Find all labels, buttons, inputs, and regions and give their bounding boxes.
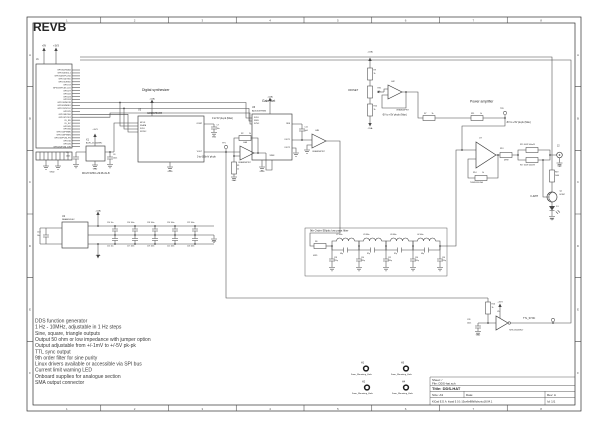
- schematic-label: H1: [361, 361, 365, 364]
- gpio-pin-label: GPIO05: [63, 126, 71, 128]
- schematic-label: I LIMIT: [530, 194, 538, 198]
- schematic-label: C7: [217, 125, 219, 127]
- schematic-label: C17 100n: [127, 245, 134, 247]
- schematic-label: 1k: [237, 168, 239, 170]
- schematic-label: R16: [492, 304, 495, 306]
- gpio-pin-label: GPIO06: [63, 129, 71, 131]
- gpio-pin-label: ID_SD: [65, 120, 72, 122]
- feature-line: SMA output connector: [35, 380, 85, 386]
- schematic-label: C36: [442, 257, 445, 259]
- grid-row-label: F: [29, 371, 31, 375]
- feature-line: Output adjustable from +/-1mV to +/-5V p…: [35, 343, 136, 349]
- schematic-label: BC847: [560, 194, 566, 196]
- schematic-label: L4 560n: [417, 234, 424, 236]
- schematic-label: R6: [315, 241, 317, 243]
- schematic-label: 82p: [367, 253, 370, 255]
- schematic-label: AD5453YRMZ: [252, 109, 267, 112]
- schematic-label: -5VA: [368, 127, 373, 130]
- schematic-label: 220p: [334, 260, 338, 262]
- label-gain-set: Gain Set: [262, 99, 275, 103]
- schematic-label: R19: [555, 172, 558, 174]
- title-block-title: Title: DDS-HAT: [432, 386, 461, 391]
- led-indicator: [80, 57, 560, 220]
- schematic-label: 82p: [394, 253, 397, 255]
- schematic-label: 100n: [66, 155, 70, 157]
- label-digital-synthesizer: Digital synthesizer: [142, 88, 170, 92]
- gpio-pin-label: GPIO16: [63, 141, 71, 143]
- title-block-file: File: DDS-hat.sch: [432, 381, 456, 385]
- schematic-canvas: Sheet: / File: DDS-hat.sch Title: DDS-HA…: [0, 0, 600, 428]
- schematic-label: U3: [138, 108, 142, 111]
- schematic-label: TTL_SYNC: [523, 317, 535, 320]
- grid-row-label: A: [577, 53, 579, 57]
- schematic-label: RV1: [378, 88, 382, 90]
- grid-row-label: D: [577, 244, 580, 248]
- power-amplifier: [468, 142, 518, 181]
- gpio-pin-label: GPIO07/CE1: [59, 117, 72, 119]
- schematic-label: NMA0505SC: [62, 218, 75, 221]
- schematic-label: C14 10u: [107, 222, 113, 224]
- schematic-label: +3V3: [497, 301, 503, 303]
- grid-col-label: 1: [66, 407, 68, 411]
- schematic-label: C13: [37, 232, 40, 234]
- schematic-label: TP6: [500, 108, 505, 110]
- grid-col-label: 2: [134, 407, 136, 411]
- gpio-pin-label: GPIO13/PWM1: [56, 135, 71, 137]
- schematic-label: C32: [388, 257, 391, 259]
- schematic-label: C6: [113, 154, 115, 156]
- title-block-date: Date:: [466, 393, 473, 397]
- feature-line: 9th order filter for sine purity: [35, 355, 98, 361]
- schematic-label: +3V3: [53, 44, 59, 47]
- gpio-pin-label: GPIO23: [63, 96, 71, 98]
- feature-line: 1 Hz - 10MHz, adjustable in 1 Hz steps: [35, 325, 122, 331]
- gpio-pin-label: GPIO14/TXD: [59, 79, 72, 81]
- schematic-label: R13: [500, 148, 503, 150]
- schematic-label: IOUT2: [284, 147, 290, 149]
- schematic-label: J2: [557, 144, 560, 147]
- schematic-label: D1: [556, 206, 559, 208]
- ttl-sync: [80, 60, 571, 335]
- gpio-pin-label: GPIO25: [63, 111, 71, 113]
- schematic-label: SDIN: [254, 120, 259, 122]
- schematic-label: OPA4820IPWT: [312, 150, 326, 153]
- schematic-label: 3mm_Mounting_Hole: [352, 392, 374, 395]
- schematic-label: OPA4820IPWT: [396, 109, 410, 112]
- schematic-label: 330p: [415, 260, 419, 262]
- schematic-label: H2: [362, 380, 366, 383]
- grid-col-label: 5: [337, 18, 339, 22]
- schematic-sheet: Sheet: / File: DDS-hat.sch Title: DDS-HA…: [0, 0, 600, 428]
- schematic-label: GND: [232, 180, 237, 182]
- grid-row-label: A: [29, 53, 31, 57]
- schematic-label: H3: [401, 361, 405, 364]
- schematic-label: OFFSET: [348, 88, 359, 92]
- sheet-frame: [27, 17, 581, 411]
- schematic-label: U6: [252, 106, 256, 109]
- gpio-pin-label: GPIO03/SCL1: [58, 73, 72, 75]
- schematic-label: R15 100R 500mW: [520, 144, 535, 146]
- feature-line: Onboard supplies for analogue section: [35, 374, 121, 380]
- schematic-label: U4B: [315, 130, 320, 132]
- gpio-pin-label: GPIO08/CE0: [59, 114, 72, 116]
- schematic-label: 1k: [374, 109, 376, 111]
- feature-line: Current limit warning LED: [35, 368, 92, 374]
- schematic-label: C28: [334, 257, 337, 259]
- schematic-label: +5VA: [95, 209, 101, 212]
- schematic-label: 2k: [249, 133, 251, 135]
- feature-list: DDS function generator1 Hz - 10MHz, adju…: [35, 319, 151, 387]
- title-block-id: Id: 1/1: [547, 399, 556, 403]
- schematic-label: 10n: [217, 128, 220, 130]
- grid-col-label: 2: [134, 18, 136, 22]
- schematic-label: Q1: [560, 191, 564, 193]
- schematic-label: +5VA: [267, 95, 273, 98]
- schematic-label: SCLK: [140, 128, 146, 130]
- sum-network: [423, 111, 507, 150]
- gpio-pin-label: GPIO02/SDA1: [57, 69, 71, 72]
- schematic-label: 49R9: [313, 255, 317, 257]
- grid-col-label: 8: [540, 18, 542, 22]
- grid-col-label: 8: [540, 407, 542, 411]
- gpio-pin-label: GPIO10/MOSI: [57, 102, 71, 104]
- schematic-label: IOUT1: [284, 139, 290, 141]
- schematic-label: THS3091DDA: [470, 181, 483, 184]
- schematic-label: 0 to 5V pk-pk (Max): [212, 117, 233, 120]
- gpio-pin-label: GPIO27: [63, 90, 71, 92]
- label-filter: 9th Order Elliptic low pass filter: [310, 228, 348, 232]
- schematic-label: GND: [93, 169, 98, 171]
- schematic-label: 1k: [480, 113, 482, 115]
- schematic-label: L1 560n: [336, 234, 343, 236]
- schematic-label: 6p8: [305, 130, 308, 132]
- schematic-label: 330p: [361, 260, 365, 262]
- schematic-label: SYNC: [254, 123, 260, 125]
- schematic-label: 0 to 600mV pk-pk: [197, 155, 217, 158]
- schematic-label: 1k: [492, 307, 494, 309]
- schematic-label: C15 10u: [107, 245, 113, 247]
- gpio-pin-label: GPIO26: [63, 143, 71, 145]
- schematic-label: C19 100n: [147, 245, 154, 247]
- schematic-label: GND: [260, 171, 265, 173]
- schematic-label: H4: [402, 380, 406, 383]
- gpio-pin-label: GPIO24: [63, 99, 71, 101]
- gain-set-mdac: [252, 98, 312, 171]
- gpio-pin-label: GPIO09/MISO: [57, 105, 71, 107]
- grid-row-label: B: [577, 117, 579, 121]
- schematic-label: R17 100R 500mW: [520, 164, 535, 166]
- gpio-pin-labels: GPIO02/SDA1GPIO03/SCL1GPIO04/GPCLK0GPIO1…: [53, 69, 72, 149]
- gpio-pin-label: GPIO12/PWM0: [56, 132, 71, 134]
- schematic-label: +5VA: [367, 50, 373, 53]
- schematic-label: 3mm_Mounting_Hole: [391, 373, 413, 376]
- schematic-label: 1k: [482, 172, 484, 174]
- schematic-label: OPA4820IPWT: [238, 161, 252, 164]
- rev-label: REVB: [33, 20, 67, 34]
- grid-reference-labels: 1122334455667788AABBCCDDEEFF: [29, 18, 580, 411]
- gpio-pin-label: GPIO20/PCM_DIN: [53, 146, 71, 148]
- grid-row-label: E: [577, 308, 579, 312]
- schematic-label: RFB: [286, 123, 291, 125]
- schematic-label: R2: [241, 133, 243, 135]
- schematic-label: C21 100n: [167, 245, 174, 247]
- schematic-label: GND: [168, 171, 173, 173]
- schematic-label: 1k: [374, 73, 376, 75]
- schematic-label: +5V: [42, 44, 47, 47]
- schematic-label: FSYNC: [140, 131, 147, 133]
- schematic-label: U2: [62, 215, 66, 218]
- grid-col-label: 1: [66, 18, 68, 22]
- schematic-label: -5VA: [96, 254, 101, 257]
- grid-col-label: 4: [269, 18, 271, 22]
- schematic-label: SCLK: [254, 117, 260, 119]
- schematic-label: COMP: [196, 123, 202, 125]
- schematic-label: C23 100n: [187, 245, 194, 247]
- schematic-label: R7: [424, 113, 426, 115]
- grid-row-label: C: [29, 180, 32, 184]
- title-block: Sheet: / File: DDS-hat.sch Title: DDS-HA…: [430, 377, 575, 405]
- schematic-label: ACHL-25.000MHz: [86, 141, 102, 144]
- schematic-label: U7: [479, 137, 483, 139]
- schematic-label: 68p: [340, 253, 343, 255]
- schematic-label: 100n: [113, 157, 117, 159]
- schematic-label: R10: [374, 106, 377, 108]
- label-power-amplifier: Power amplifier: [470, 99, 494, 103]
- schematic-label: AD9837BCPZ: [147, 112, 163, 115]
- schematic-label: R11: [471, 113, 474, 115]
- schematic-label: C26: [467, 319, 470, 321]
- schematic-label: GND: [476, 335, 481, 337]
- schematic-label: C11: [305, 127, 308, 129]
- gpio-pin-label: GPIO15/RXD: [58, 82, 71, 84]
- schematic-label: X1: [86, 138, 90, 141]
- schematic-label: VREF: [269, 155, 275, 157]
- schematic-label: U4A: [243, 141, 248, 144]
- schematic-label: C16 100n: [127, 222, 134, 224]
- title-block-size: Size: A3: [432, 393, 443, 397]
- schematic-label: C34: [415, 257, 418, 259]
- schematic-label: 220p: [442, 260, 446, 262]
- schematic-label: 3mm_Mounting_Hole: [351, 373, 373, 376]
- schematic-label: -5V to +5V pk-pk (Max): [506, 121, 531, 124]
- schematic-label: 10k: [378, 91, 381, 93]
- grid-row-label: D: [29, 244, 32, 248]
- schematic-label: GND: [212, 137, 217, 139]
- feature-line: Output 50 ohm or low impedance with jump…: [35, 337, 151, 343]
- schematic-label: -5V to +5V pk-pk (Max): [382, 113, 407, 116]
- feature-line: TTL sync output: [35, 349, 71, 355]
- gpio-pin-label: GPIO04/GPCLK0: [55, 76, 72, 78]
- schematic-label: MCLH-WHC1-29.08-JG-B: [82, 172, 110, 175]
- grid-col-label: 3: [202, 18, 204, 22]
- schematic-label: GND: [50, 171, 55, 173]
- opamp-u4a: [231, 136, 272, 181]
- mounting-holes: [364, 366, 409, 390]
- schematic-label: L2 680n: [363, 234, 370, 236]
- schematic-label: 10u: [37, 235, 40, 237]
- schematic-label: J1: [36, 57, 39, 61]
- schematic-label: R14: [473, 172, 476, 174]
- schematic-label: U4C: [391, 81, 396, 83]
- schematic-label: +3V3: [92, 129, 98, 131]
- feature-line: Sine, square, triangle outputs: [35, 331, 101, 337]
- schematic-label: C18 100n: [147, 222, 154, 224]
- schematic-label: GND: [557, 166, 562, 168]
- gpio-pin-label: GPIO22: [63, 93, 71, 95]
- grid-col-label: 6: [405, 18, 407, 22]
- gpio-pin-label: GPIO17: [63, 84, 71, 86]
- schematic-label: R9: [374, 70, 376, 72]
- schematic-label: 1k00: [555, 175, 559, 177]
- schematic-label: R1: [237, 165, 239, 167]
- gpio-pin-label: ID_SC: [65, 123, 72, 125]
- grid-col-label: 3: [202, 407, 204, 411]
- dds-synthesizer: [138, 100, 240, 171]
- schematic-label: 100n: [467, 322, 471, 324]
- feature-line: Linux drivers available or accessible vi…: [35, 362, 142, 368]
- schematic-label: MCLK: [140, 122, 146, 124]
- schematic-label: L3 680n: [390, 234, 397, 236]
- grid-row-label: C: [577, 180, 580, 184]
- schematic-label: C20 100n: [167, 222, 174, 224]
- schematic-label: C30: [361, 257, 364, 259]
- grid-col-label: 7: [473, 18, 475, 22]
- schematic-label: TP1: [222, 143, 227, 145]
- grid-row-label: E: [29, 308, 31, 312]
- schematic-label: 74HC1G04GW-T: [509, 330, 524, 332]
- schematic-label: GND: [212, 241, 217, 243]
- grid-col-label: 4: [269, 407, 271, 411]
- grid-col-label: 7: [473, 407, 475, 411]
- grid-col-label: 6: [405, 407, 407, 411]
- grid-row-label: B: [29, 117, 31, 121]
- schematic-label: SDATA: [140, 124, 147, 127]
- title-block-rev: Rev: A: [547, 393, 556, 397]
- schematic-label: GND: [550, 219, 555, 221]
- schematic-label: +5VA: [149, 97, 155, 100]
- schematic-label: C5: [66, 152, 68, 154]
- schematic-label: 330p: [388, 260, 392, 262]
- schematic-label: 1k: [432, 113, 434, 115]
- gpio-pin-label: GPIO11/SCLK: [57, 108, 71, 110]
- schematic-label: 3mm_Mounting_Hole: [392, 392, 414, 395]
- gpio-pin-label: GPIO18/PCM_CLK: [53, 87, 72, 89]
- title-block-tool: KiCad E.D.A. kicad 5.0.1-15ce6e88b8ubunt…: [432, 399, 493, 403]
- schematic-label: C22 100n: [187, 222, 194, 224]
- schematic-label: 49R9: [504, 160, 509, 162]
- grid-col-label: 5: [337, 407, 339, 411]
- grid-row-label: F: [577, 371, 579, 375]
- feature-line: DDS function generator: [35, 319, 88, 325]
- schematic-label: VOUT: [197, 151, 203, 153]
- gpio-pin-label: GPIO19/PCM_FS: [54, 138, 71, 140]
- schematic-label: 68p: [421, 253, 424, 255]
